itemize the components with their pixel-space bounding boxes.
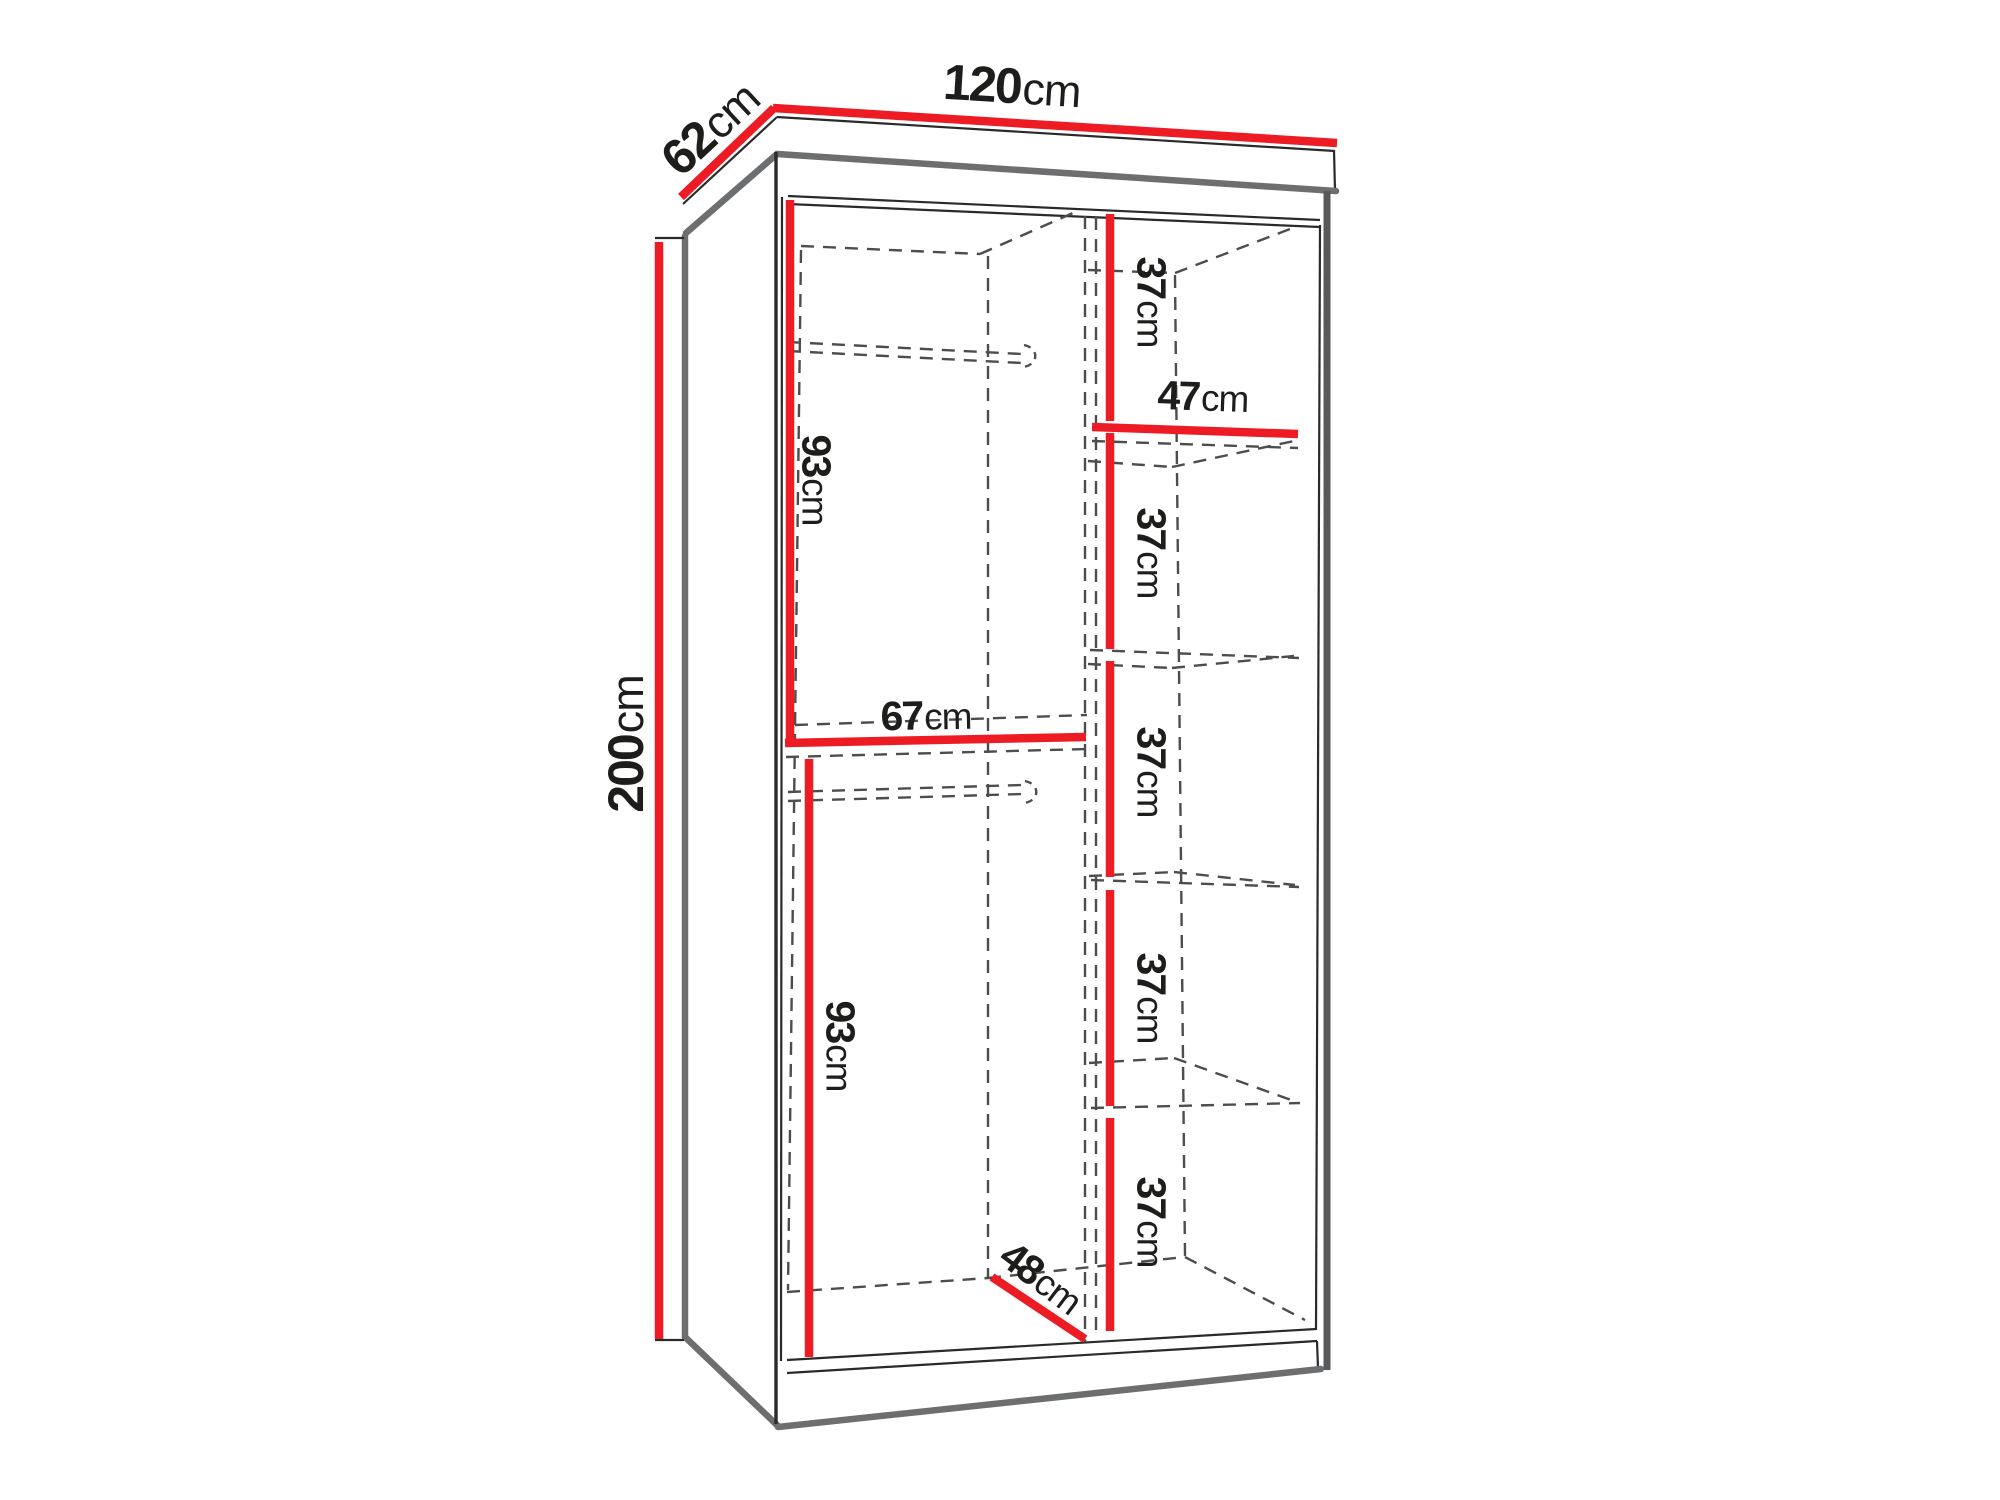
right-shelf-width-dimension-label: 47cm [1157, 375, 1249, 419]
wardrobe-dimension-diagram: 120cm 62cm 200cm 93cm 67cm 93cm 48cm 47c… [0, 0, 2000, 1500]
dimension-value: 93 [818, 1001, 864, 1043]
dimension-unit: cm [1200, 377, 1249, 420]
height-dimension-label: 200cm [601, 675, 651, 812]
dimension-value: 93 [794, 435, 840, 477]
dimension-unit: cm [1130, 551, 1171, 598]
dimension-value: 47 [1157, 372, 1200, 419]
left-shelf-width-dimension-label: 67cm [880, 695, 972, 738]
dimension-unit: cm [1130, 300, 1171, 347]
dimension-value: 67 [880, 693, 922, 740]
dimension-lines [659, 108, 1337, 1357]
right-section-2-dimension-label: 37cm [1131, 508, 1172, 599]
dimension-unit: cm [819, 1044, 860, 1091]
width-dimension-label: 120cm [942, 57, 1082, 116]
dimension-unit: cm [1130, 1220, 1171, 1267]
dimension-unit: cm [795, 478, 836, 525]
dimension-unit: cm [924, 696, 972, 738]
dimension-value: 37 [1129, 508, 1175, 550]
cabinet-outline [655, 117, 1336, 1427]
left-bottom-section-dimension-label: 93cm [820, 1001, 861, 1092]
dimension-value: 200 [598, 735, 654, 812]
dimension-value: 37 [1129, 727, 1175, 769]
right-section-4-dimension-label: 37cm [1131, 953, 1172, 1044]
dimension-unit: cm [1021, 63, 1082, 118]
dimension-value: 37 [1129, 1177, 1175, 1219]
right-section-5-dimension-label: 37cm [1131, 1177, 1172, 1268]
dimension-unit: cm [1130, 770, 1171, 817]
dimension-value: 37 [1129, 257, 1175, 299]
dimension-value: 37 [1129, 953, 1175, 995]
dimension-value: 120 [942, 54, 1023, 115]
right-section-3-dimension-label: 37cm [1131, 727, 1172, 818]
dimension-unit: cm [602, 675, 653, 733]
dimension-unit: cm [1130, 996, 1171, 1043]
right-section-1-dimension-label: 37cm [1131, 257, 1172, 348]
left-top-section-dimension-label: 93cm [796, 435, 837, 526]
